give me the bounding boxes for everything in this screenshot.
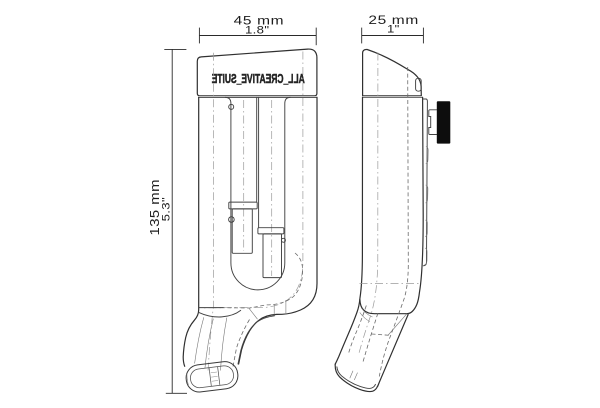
svg-text:1": 1" (387, 23, 400, 36)
svg-text:5.3": 5.3" (159, 197, 172, 221)
svg-text:1.8": 1.8" (245, 24, 269, 37)
svg-text:ALL_CREATIVE_SUITE: ALL_CREATIVE_SUITE (212, 72, 305, 86)
